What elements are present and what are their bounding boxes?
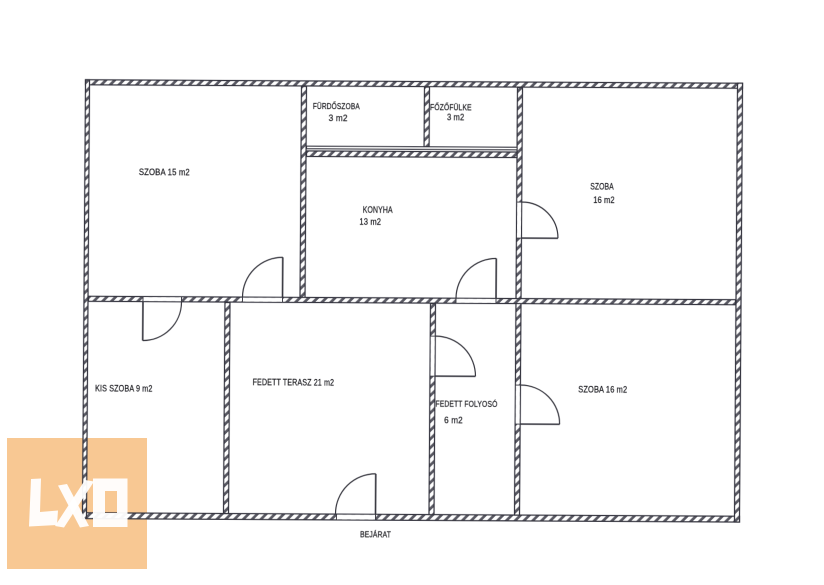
svg-text:FÜRDŐSZOBA: FÜRDŐSZOBA xyxy=(313,101,360,111)
svg-text:BEJÁRAT: BEJÁRAT xyxy=(360,529,391,539)
svg-text:3 m2: 3 m2 xyxy=(329,113,348,123)
svg-text:16 m2: 16 m2 xyxy=(593,195,615,205)
svg-text:13 m2: 13 m2 xyxy=(359,217,381,227)
svg-text:SZOBA 15 m2: SZOBA 15 m2 xyxy=(139,167,190,177)
svg-text:FEDETT FOLYOSÓ: FEDETT FOLYOSÓ xyxy=(435,399,497,409)
svg-text:SZOBA: SZOBA xyxy=(590,182,614,192)
svg-text:KONYHA: KONYHA xyxy=(363,205,394,215)
svg-text:SZOBA 16 m2: SZOBA 16 m2 xyxy=(578,384,627,394)
svg-text:6 m2: 6 m2 xyxy=(444,415,463,425)
svg-text:FŐZŐFÜLKE: FŐZŐFÜLKE xyxy=(430,102,472,112)
svg-text:FEDETT TERASZ 21 m2: FEDETT TERASZ 21 m2 xyxy=(253,377,335,387)
svg-text:KIS SZOBA 9 m2: KIS SZOBA 9 m2 xyxy=(95,383,153,393)
svg-text:3 m2: 3 m2 xyxy=(447,112,464,122)
